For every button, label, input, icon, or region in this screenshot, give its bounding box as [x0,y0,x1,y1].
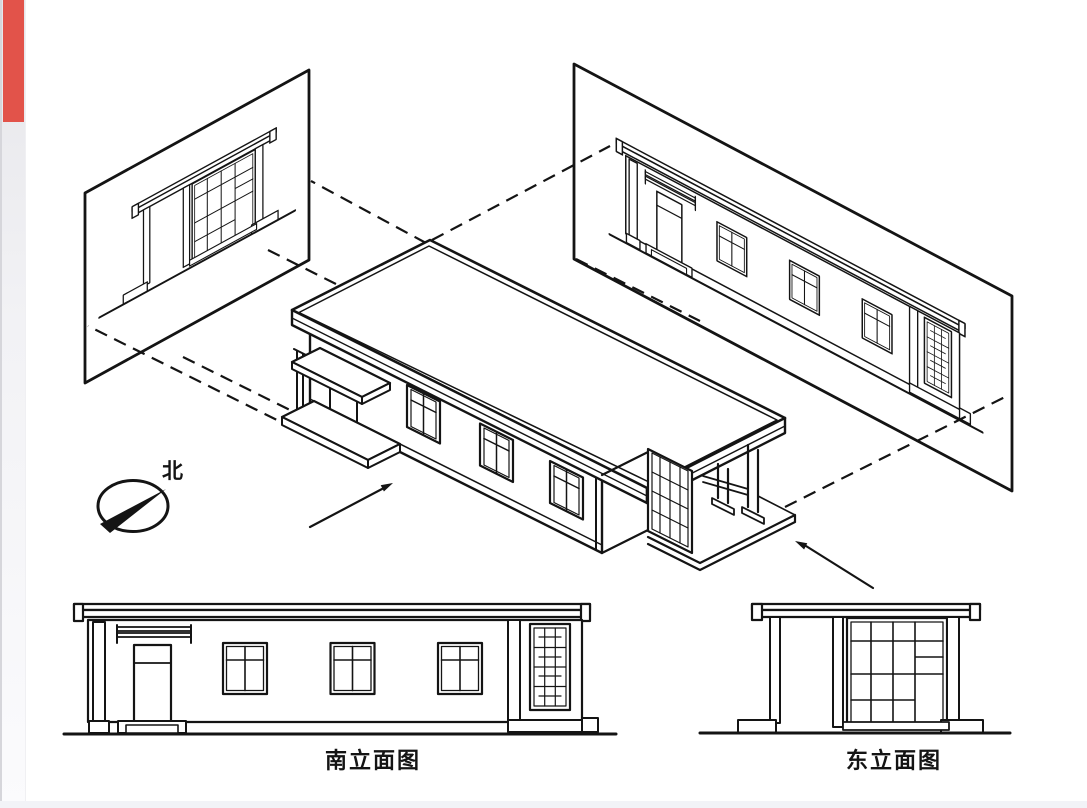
east-view-arrow [795,541,873,588]
east-elevation-caption: 东立面图 [846,748,942,773]
north-compass: 北 [98,459,183,533]
south-view-arrow [310,483,393,527]
south-elevation-drawing [64,604,616,734]
axonometric-projection-figure: 北 南立面图 东立面图 [0,0,1087,808]
south-elevation-caption: 南立面图 [325,748,421,773]
compass-north-label: 北 [162,459,183,483]
east-elevation-drawing [700,604,1010,733]
